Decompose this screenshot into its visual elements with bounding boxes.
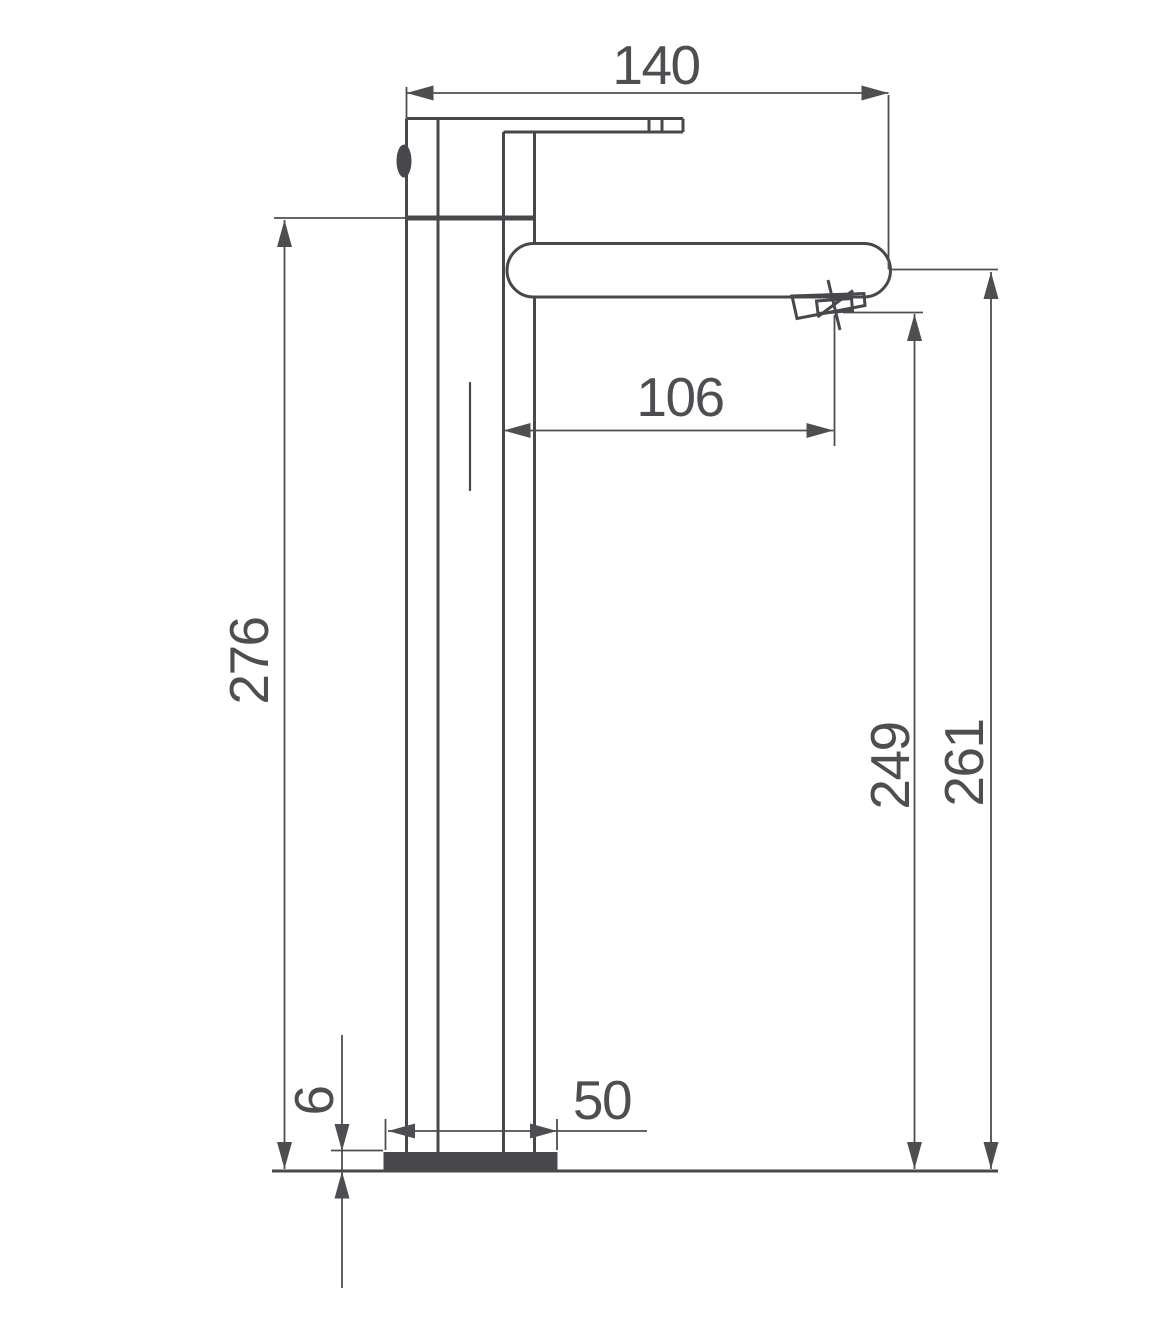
dim-50-label: 50 <box>573 1069 631 1131</box>
dim-6-label: 6 <box>283 1086 345 1115</box>
dim-spout-reach: 106 <box>504 315 835 446</box>
dim-50-arrow-left <box>388 1124 415 1139</box>
dim-276-arrow-bottom <box>277 1142 292 1169</box>
dim-spout-top-height: 261 <box>889 270 999 1170</box>
dim-140-label: 140 <box>612 34 699 96</box>
dim-276-label: 276 <box>218 617 280 704</box>
dim-base-thickness: 6 <box>283 1035 383 1288</box>
dim-body-height: 276 <box>218 218 405 1169</box>
faucet-outline <box>272 119 998 1172</box>
dim-276-arrow-top <box>277 220 292 247</box>
dim-106-arrow-right <box>807 423 834 438</box>
base-plate <box>384 1152 558 1170</box>
dim-106-arrow-left <box>504 423 531 438</box>
dim-261-label: 261 <box>933 719 995 806</box>
dim-6-arrow-down <box>335 1124 350 1151</box>
dim-261-arrow-top <box>984 272 999 299</box>
dim-50-arrow-right <box>530 1124 557 1139</box>
dim-249-label: 249 <box>859 722 921 809</box>
dim-249-arrow-top <box>907 314 922 341</box>
dim-106-label: 106 <box>636 366 723 428</box>
dim-140-arrow-left <box>407 86 434 101</box>
spout <box>507 244 891 298</box>
dim-261-arrow-bottom <box>984 1142 999 1169</box>
side-knob <box>397 145 412 178</box>
dim-base-width: 50 <box>386 1069 648 1150</box>
faucet-dimension-drawing: 140 106 276 249 261 50 <box>0 0 1165 1320</box>
dim-6-arrow-up <box>335 1172 350 1199</box>
lever-handle <box>407 119 684 133</box>
dim-outlet-height: 249 <box>843 313 923 1170</box>
technical-drawing-canvas: 140 106 276 249 261 50 <box>0 0 1165 1320</box>
dim-249-arrow-bottom <box>907 1142 922 1169</box>
dim-140-arrow-right <box>862 86 889 101</box>
dim-total-width: 140 <box>407 34 889 269</box>
